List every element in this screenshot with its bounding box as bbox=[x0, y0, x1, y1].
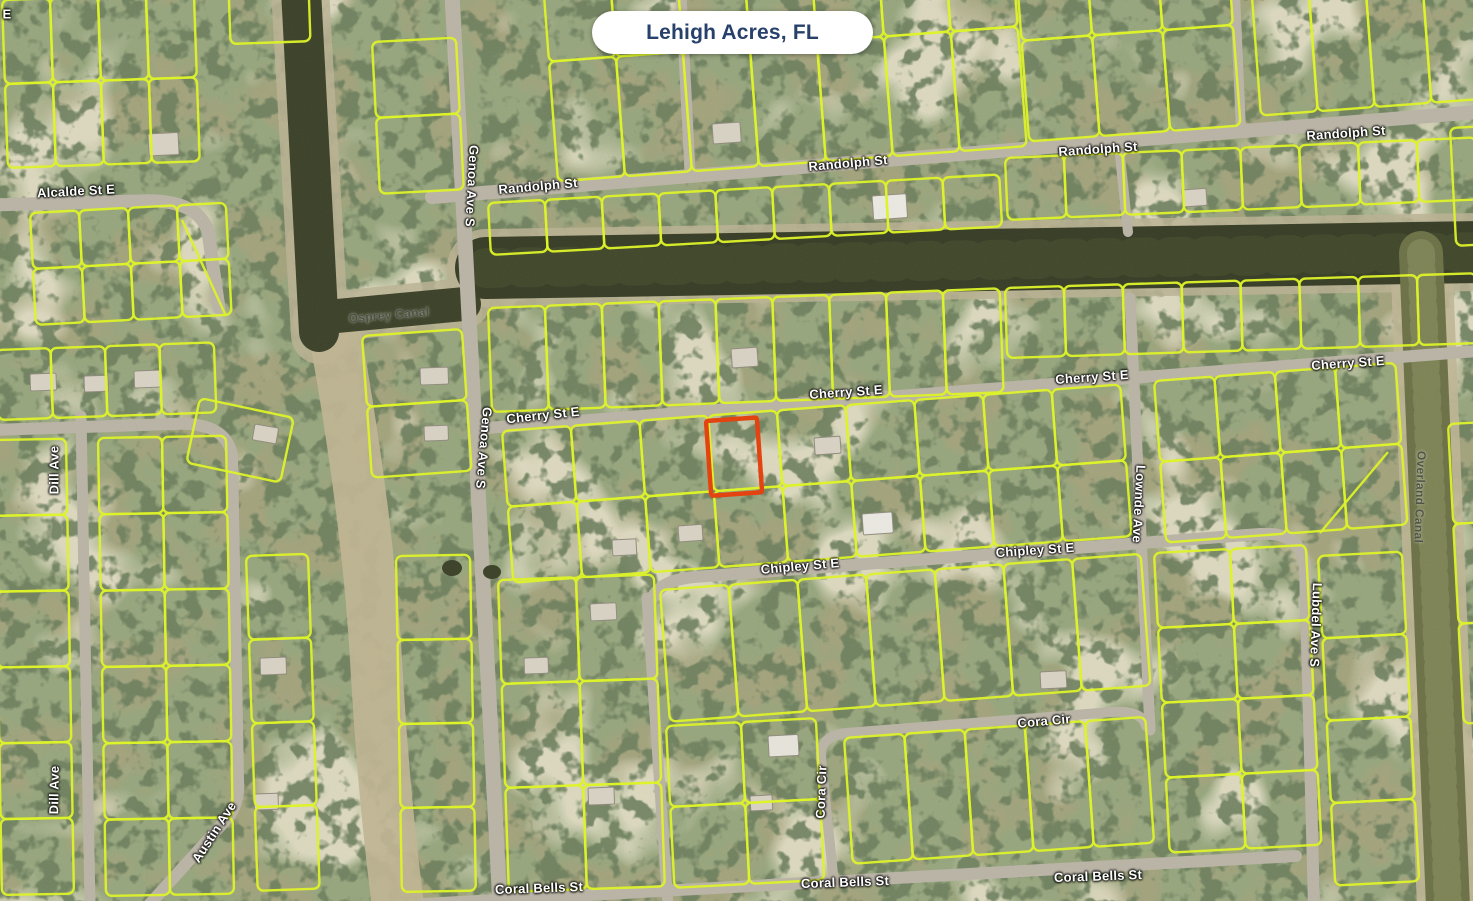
aerial-map-canvas[interactable] bbox=[0, 0, 1473, 901]
grain-overlay bbox=[0, 0, 1473, 901]
location-pill-label: Lehigh Acres, FL bbox=[646, 21, 819, 45]
map-viewport[interactable]: EAlcalde St ERandolph StRandolph StRando… bbox=[0, 0, 1473, 901]
location-pill: Lehigh Acres, FL bbox=[592, 11, 873, 54]
